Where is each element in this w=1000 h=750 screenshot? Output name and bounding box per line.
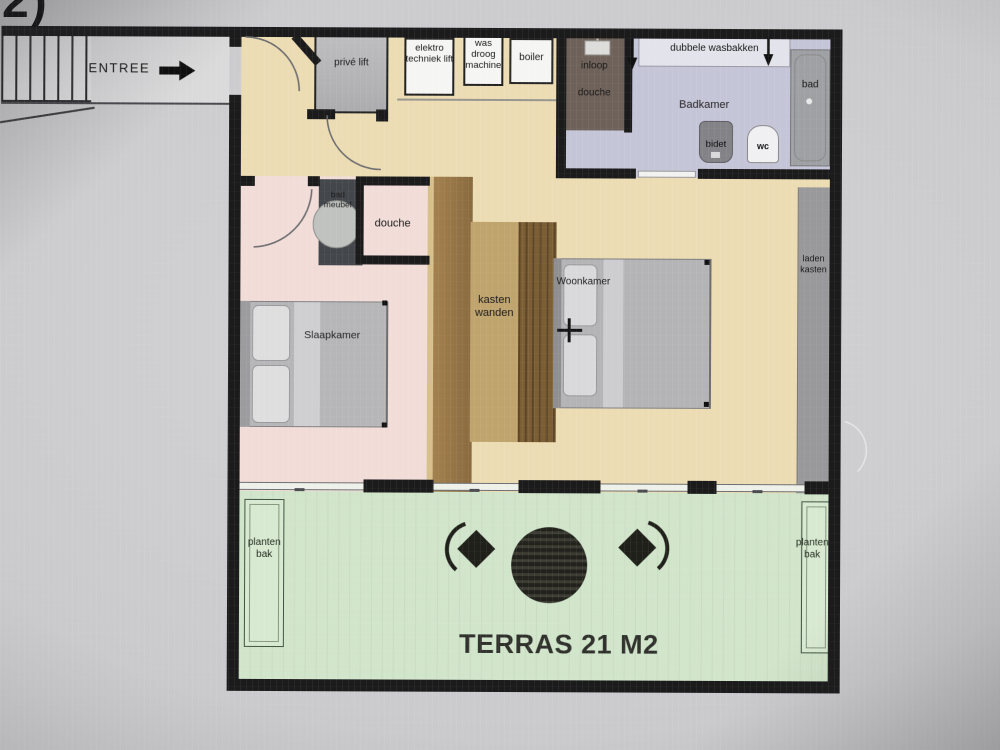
bed-corner-post: [704, 260, 709, 265]
terrace-table: [511, 527, 587, 603]
slaapkamer-label: Slaapkamer: [294, 329, 370, 342]
living-pillow: [563, 334, 597, 396]
bad-label: bad: [795, 79, 825, 91]
dimension-tick: [469, 489, 479, 492]
shower-divider-wall: [624, 29, 632, 133]
bedroom-wall-stub: [308, 176, 320, 186]
wc-label: wc: [749, 141, 777, 152]
planten-bak-right-label: planten bak: [790, 537, 834, 561]
entree-label: ENTREE: [87, 60, 151, 76]
floorplan-photo: ENTREE: [0, 0, 1000, 750]
boiler-label: boiler: [510, 52, 552, 64]
prive-lift-label: privé lift: [321, 57, 381, 69]
bedroom-bed-sheet-fold: [294, 302, 321, 426]
bedroom-pillow: [252, 305, 290, 361]
staircase: [1, 36, 91, 102]
left-wall-upper: [229, 27, 241, 47]
wardrobe-dark-strip: [518, 222, 557, 442]
corridor-bottom-line: [1, 102, 234, 105]
badkamer-label: Badkamer: [669, 99, 739, 112]
bathtub-inner: [794, 54, 826, 161]
bed-corner-post: [382, 422, 387, 427]
bathroom-left-wall: [556, 28, 567, 178]
entree-arrow-head-icon: [179, 61, 195, 81]
terrace-wall-segment: [518, 480, 600, 493]
entree-arrow-icon: [159, 67, 179, 75]
terrace-wall-segment: [804, 481, 840, 494]
was-droog-label: was droog machine: [464, 38, 502, 72]
lift-wall-stub: [376, 109, 388, 121]
bathroom-bottom-wall: [698, 169, 830, 180]
woonkamer-label: Woonkamer: [548, 276, 618, 288]
bidet-label: bidet: [698, 139, 734, 150]
terrace-wall-segment: [363, 479, 433, 492]
bedroom-bed-headboard: [240, 301, 251, 427]
bad-meubel-label: bad meubel: [317, 189, 359, 209]
living-pillow: [563, 264, 597, 326]
douche-label: douche: [363, 217, 423, 230]
planter-box-right: [801, 501, 832, 653]
page-corner-mark: 2): [2, 0, 49, 29]
dimension-tick: [752, 490, 762, 493]
elektro-techniek-label: elektro techniek lift: [405, 43, 453, 66]
bed-corner-post: [382, 300, 387, 305]
wardrobe-wall-strip: [426, 177, 472, 492]
wardrobe-mid-panel: [470, 222, 519, 442]
dubbele-wasbakken-label: dubbele wasbakken: [641, 43, 787, 55]
terras-label: TERRAS 21 M2: [429, 629, 689, 662]
bathroom-sliding-door: [638, 171, 696, 178]
private-elevator: [314, 35, 388, 113]
drawer-cabinet-strip: [796, 187, 829, 493]
kasten-wanden-label: kasten wanden: [466, 294, 522, 320]
planter-box-left: [244, 499, 285, 647]
bathroom-bottom-wall: [556, 168, 636, 178]
bedroom-wall-stub: [241, 176, 255, 186]
shower-room-bottom-wall: [355, 255, 429, 264]
right-wall: [828, 29, 843, 693]
bedroom-pillow: [252, 365, 290, 423]
laden-kasten-label: laden kasten: [793, 253, 833, 274]
stair-diagonal-line: [0, 107, 95, 124]
inloop-douche-label: inloop douche: [566, 52, 622, 106]
bathtub-drain: [806, 98, 812, 104]
bed-corner-post: [704, 402, 709, 407]
dimension-tick: [294, 488, 304, 491]
stray-arc-artifact: [845, 422, 867, 472]
lift-wall-stub: [307, 109, 335, 119]
bottom-wall: [227, 679, 840, 694]
bidet-mark: [711, 152, 720, 158]
terrace-wall-segment: [687, 481, 716, 494]
floorplan: ENTREE: [0, 0, 1000, 750]
dimension-tick: [637, 490, 647, 493]
shower-room-top-wall: [356, 176, 430, 185]
planten-bak-left-label: planten bak: [243, 537, 285, 561]
